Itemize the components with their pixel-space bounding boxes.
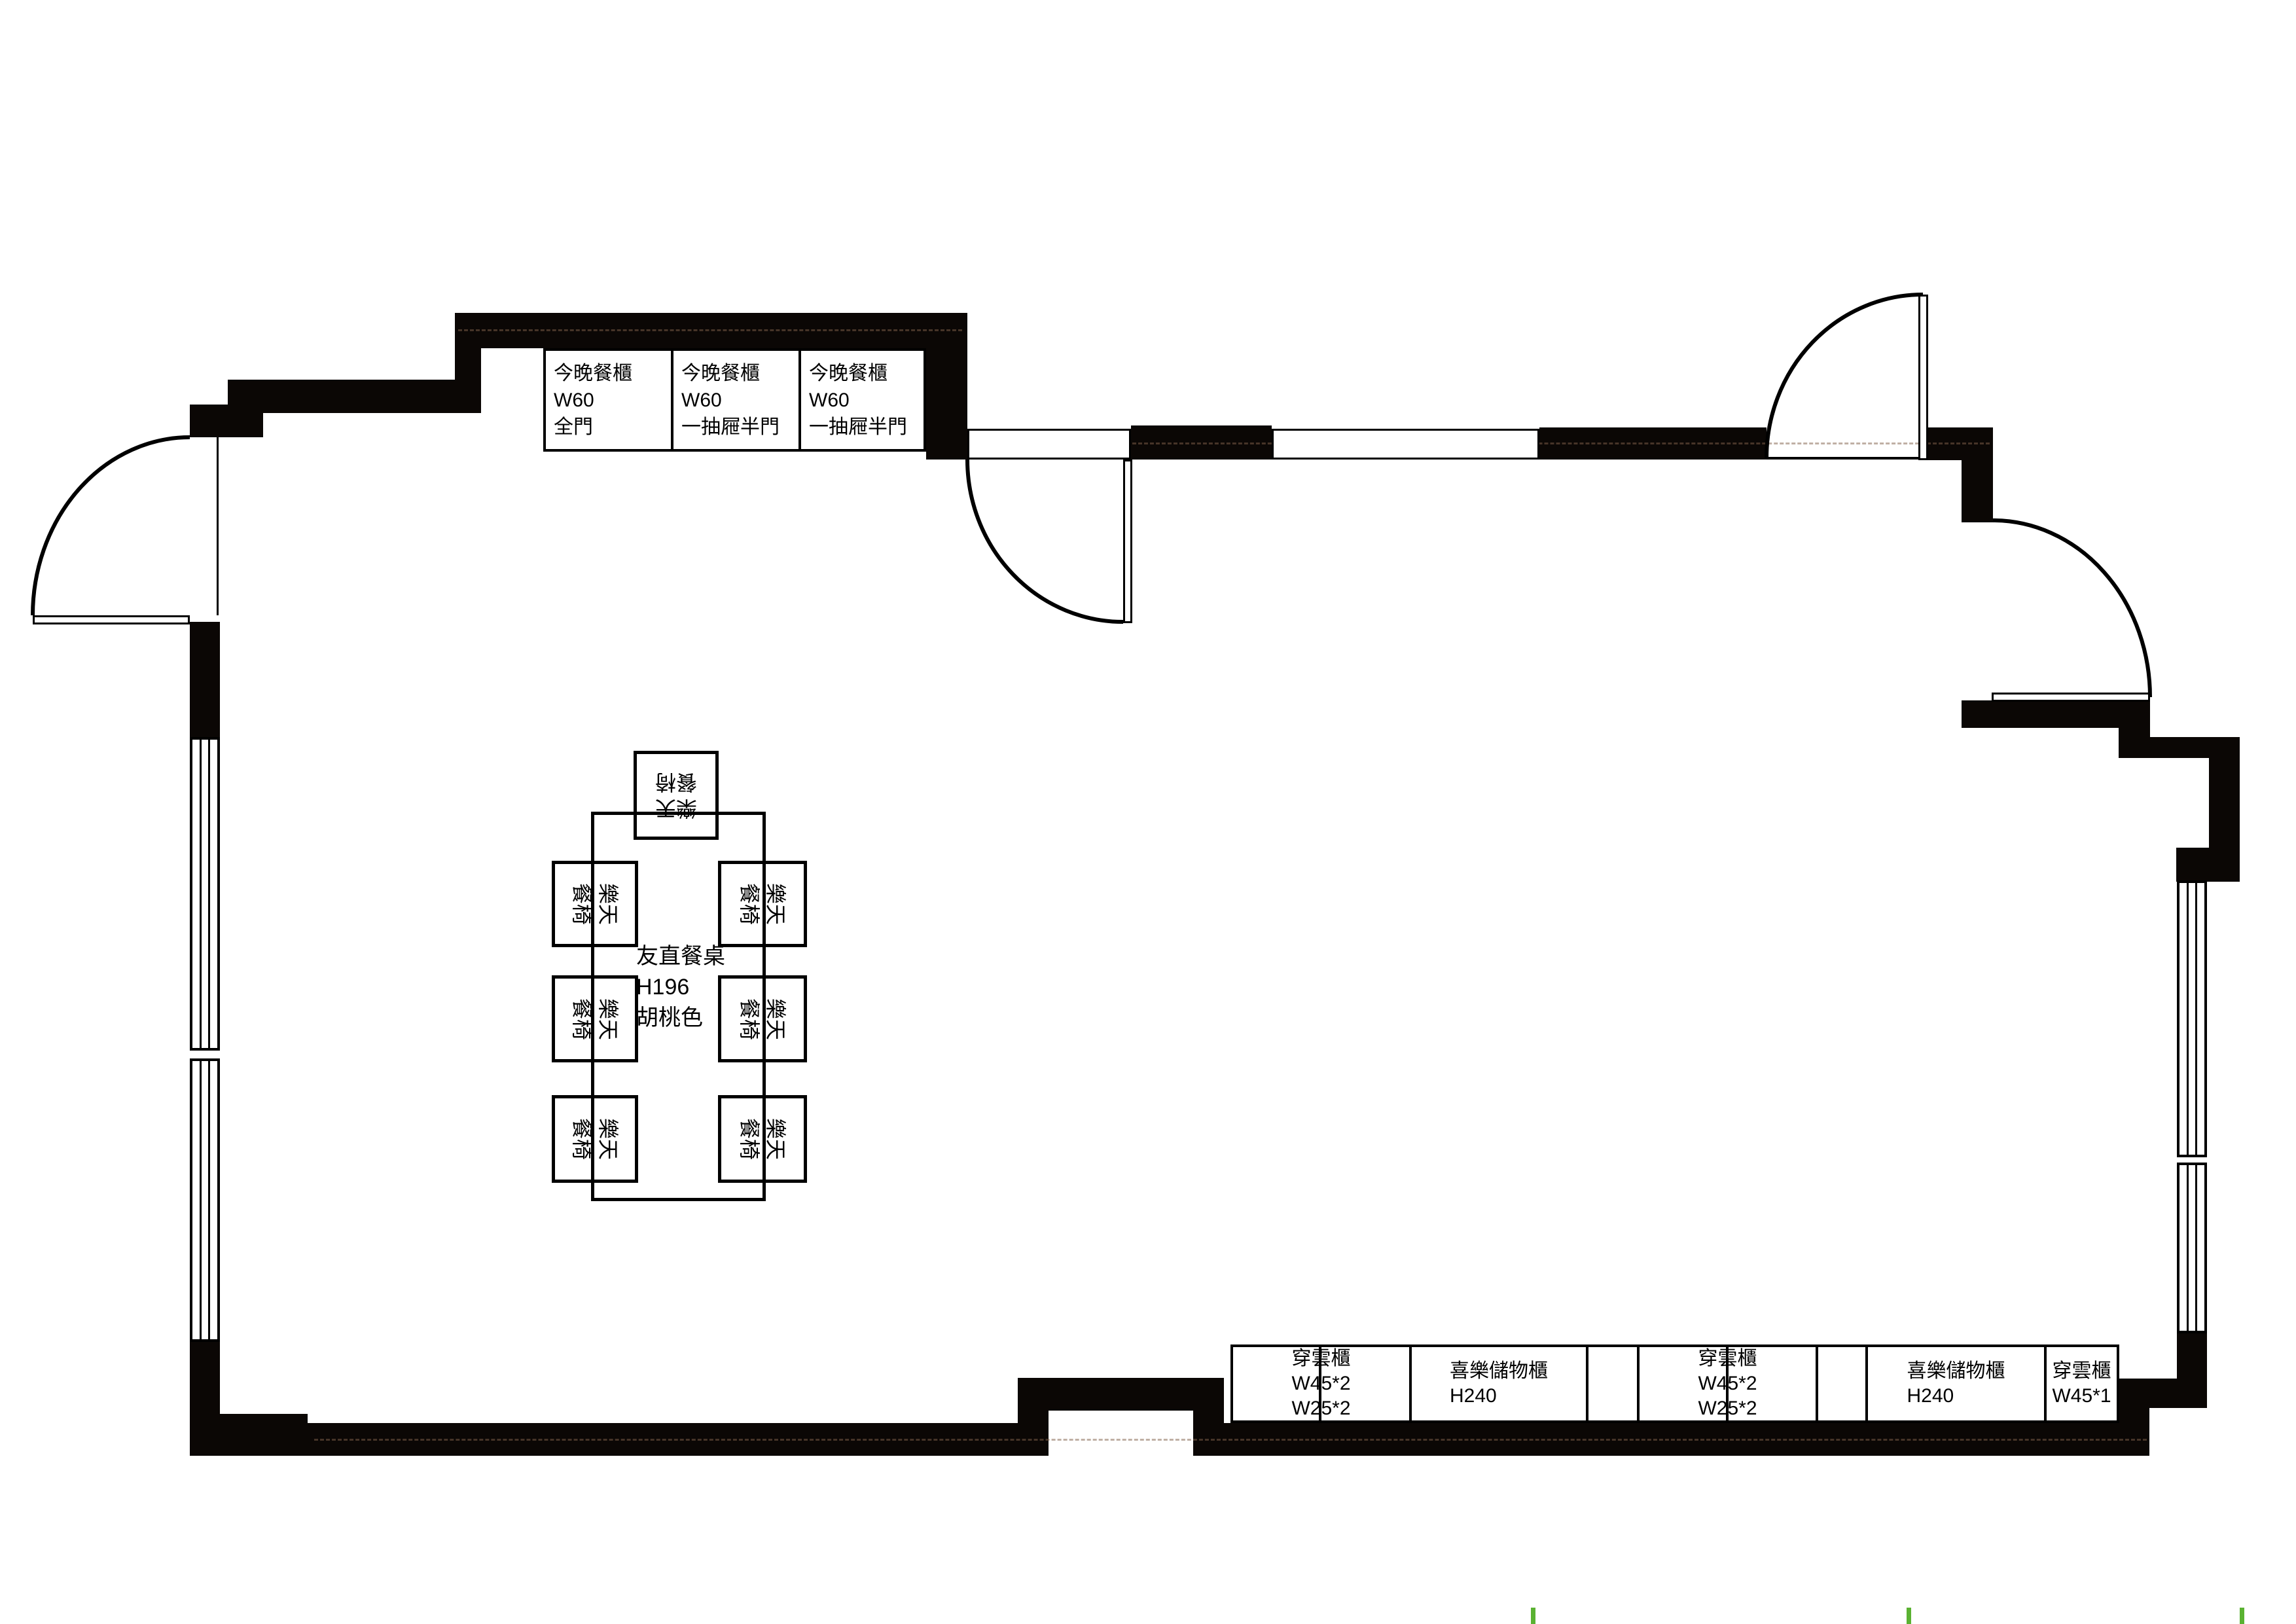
cabinet-divider: [1726, 1344, 1729, 1423]
cabinet-bottom-7: 穿雲櫃 W45*1: [2044, 1344, 2119, 1423]
chair-right-3: 樂天 餐椅: [718, 1095, 807, 1183]
chair-label: 樂天 餐椅: [569, 883, 621, 925]
cabinet-bottom-6: 喜樂儲物櫃 H240: [1865, 1344, 2047, 1423]
cabinet-label: 穿雲櫃 W45*1: [2052, 1359, 2111, 1409]
chair-head: 樂天 餐椅: [634, 751, 719, 840]
cabinet-label: 喜樂儲物櫃 H240: [1907, 1359, 2005, 1409]
door-arc-left: [33, 437, 190, 615]
chair-label: 樂天 餐椅: [736, 998, 789, 1039]
cabinet-top-2: 今晚餐櫃 W60 一抽屜半門: [671, 348, 801, 452]
cabinet-divider: [1319, 1344, 1321, 1423]
chair-label: 樂天 餐椅: [655, 769, 697, 821]
green-reference-tick: [1907, 1608, 1911, 1624]
chair-right-1: 樂天 餐椅: [718, 861, 807, 947]
cabinet-label: 今晚餐櫃 W60 全門: [554, 360, 663, 441]
chair-left-2: 樂天 餐椅: [552, 975, 638, 1062]
cabinet-bottom-5: [1816, 1344, 1868, 1423]
cabinet-label: 喜樂儲物櫃 H240: [1450, 1359, 1548, 1409]
cabinet-label: 今晚餐櫃 W60 一抽屜半門: [809, 360, 916, 441]
chair-label: 樂天 餐椅: [569, 998, 621, 1039]
chair-left-1: 樂天 餐椅: [552, 861, 638, 947]
cabinet-bottom-3: [1586, 1344, 1640, 1423]
dining-table-label: 友直餐桌 H196 胡桃色: [636, 941, 725, 1034]
cabinet-label: 今晚餐櫃 W60 一抽屜半門: [681, 360, 791, 441]
green-reference-tick: [1531, 1608, 1535, 1624]
floor-plan: 今晚餐櫃 W60 全門 今晚餐櫃 W60 一抽屜半門 今晚餐櫃 W60 一抽屜半…: [0, 0, 2296, 1624]
chair-left-3: 樂天 餐椅: [552, 1095, 638, 1183]
cabinet-bottom-2: 喜樂儲物櫃 H240: [1409, 1344, 1588, 1423]
door-arc-top-right: [1767, 295, 1923, 458]
chair-right-2: 樂天 餐椅: [718, 975, 807, 1062]
cabinet-top-3: 今晚餐櫃 W60 一抽屜半門: [798, 348, 926, 452]
cabinet-top-1: 今晚餐櫃 W60 全門: [543, 348, 673, 452]
chair-label: 樂天 餐椅: [736, 1118, 789, 1160]
door-arc-top: [967, 460, 1123, 622]
chair-label: 樂天 餐椅: [736, 883, 789, 925]
door-arc-right: [1993, 520, 2150, 697]
green-reference-tick: [2240, 1608, 2244, 1624]
chair-label: 樂天 餐椅: [569, 1118, 621, 1160]
